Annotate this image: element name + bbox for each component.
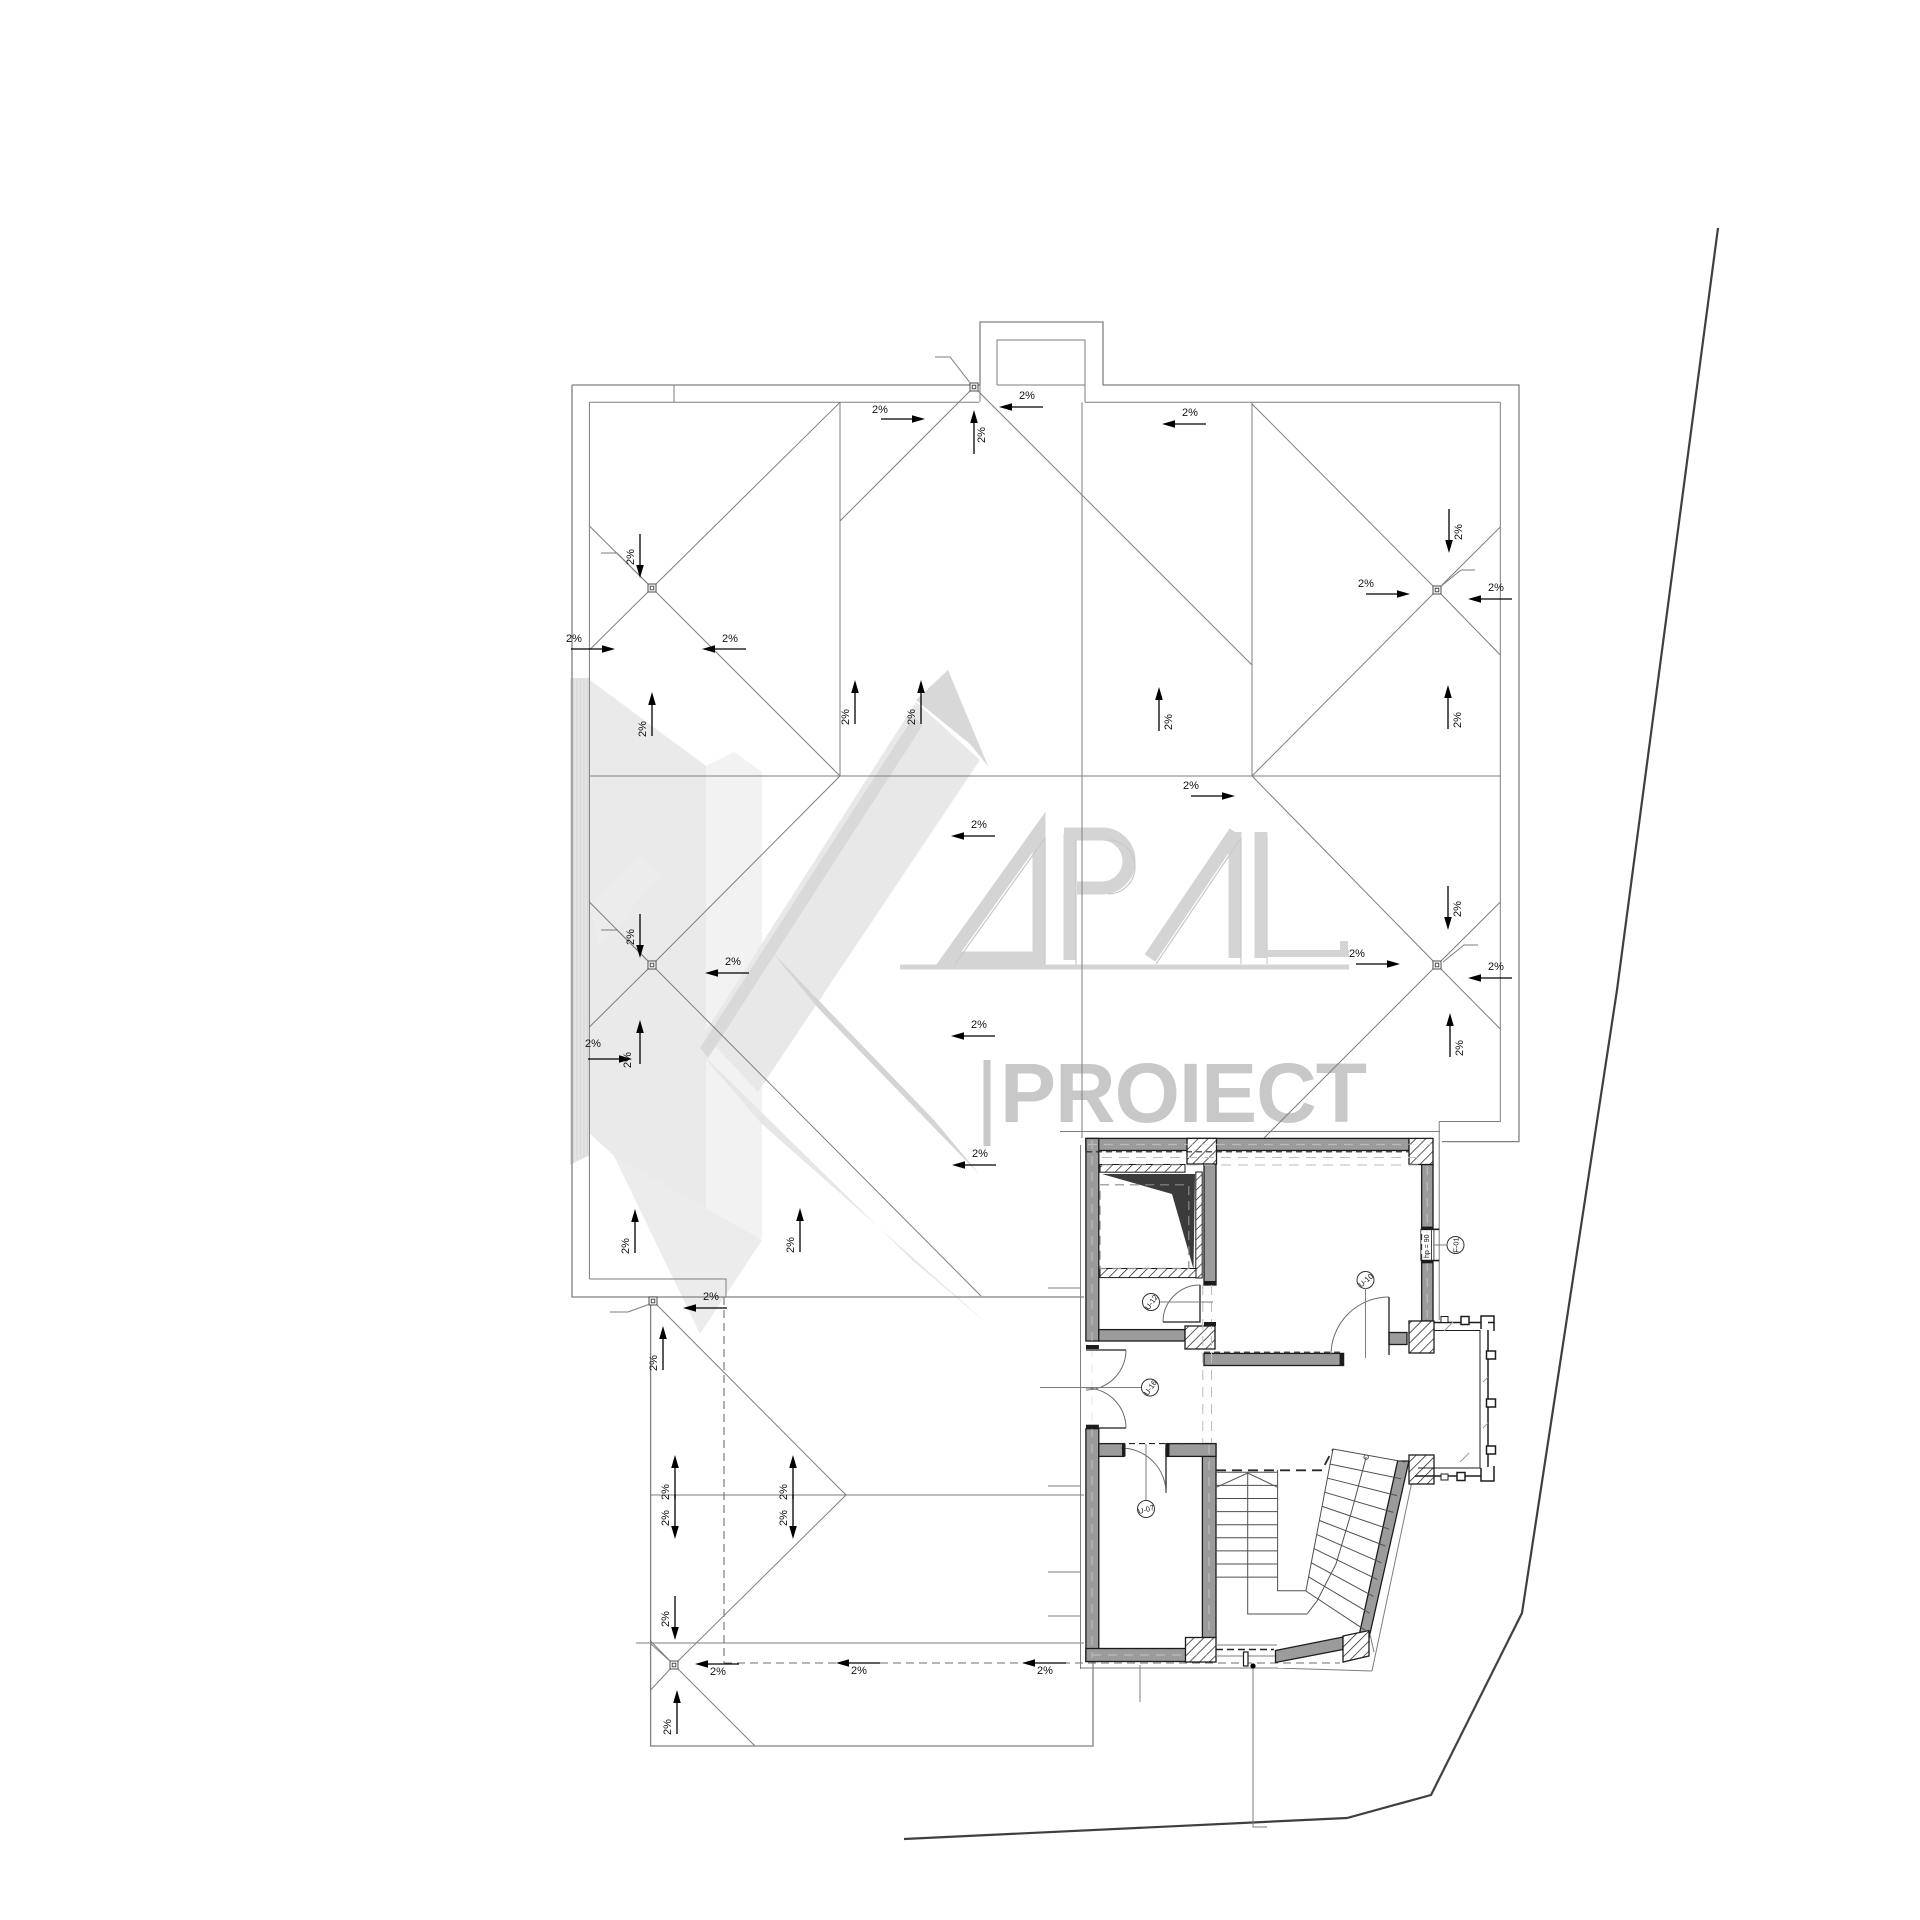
svg-text:2%: 2% [725, 956, 741, 968]
svg-text:2%: 2% [660, 1611, 672, 1627]
svg-text:2%: 2% [778, 1510, 790, 1526]
svg-text:hp = 90: hp = 90 [1424, 1234, 1431, 1258]
svg-text:2%: 2% [971, 819, 987, 831]
svg-text:2%: 2% [722, 633, 738, 645]
svg-text:2%: 2% [976, 427, 988, 443]
svg-text:2%: 2% [1452, 712, 1464, 728]
svg-text:2%: 2% [1349, 948, 1365, 960]
svg-text:PROIECT: PROIECT [1000, 1046, 1367, 1140]
svg-text:2%: 2% [660, 1484, 672, 1500]
svg-text:2%: 2% [1358, 578, 1374, 590]
svg-text:2%: 2% [1488, 582, 1504, 594]
svg-text:2%: 2% [1452, 901, 1464, 917]
svg-text:2%: 2% [971, 1019, 987, 1031]
svg-text:2%: 2% [1183, 780, 1199, 792]
svg-text:2%: 2% [622, 1052, 634, 1068]
svg-text:2%: 2% [662, 1719, 674, 1735]
svg-text:2%: 2% [1182, 407, 1198, 419]
svg-text:2%: 2% [972, 1148, 988, 1160]
svg-text:2%: 2% [703, 1291, 719, 1303]
svg-text:F-01: F-01 [1452, 1237, 1461, 1252]
svg-text:2%: 2% [906, 709, 918, 725]
svg-text:2%: 2% [625, 929, 637, 945]
svg-text:2%: 2% [648, 1355, 660, 1371]
svg-text:2%: 2% [620, 1238, 632, 1254]
svg-text:2%: 2% [778, 1484, 790, 1500]
svg-text:2%: 2% [710, 1666, 726, 1678]
svg-text:2%: 2% [1453, 524, 1465, 540]
svg-text:2%: 2% [566, 633, 582, 645]
svg-text:2%: 2% [1163, 714, 1175, 730]
svg-text:2%: 2% [785, 1237, 797, 1253]
svg-text:2%: 2% [1488, 961, 1504, 973]
svg-text:2%: 2% [851, 1665, 867, 1677]
svg-text:2%: 2% [1037, 1665, 1053, 1677]
svg-text:2%: 2% [637, 721, 649, 737]
svg-text:2%: 2% [840, 709, 852, 725]
svg-text:2%: 2% [1019, 390, 1035, 402]
svg-text:2%: 2% [585, 1038, 601, 1050]
svg-text:2%: 2% [872, 404, 888, 416]
svg-text:2%: 2% [660, 1510, 672, 1526]
svg-text:2%: 2% [625, 549, 637, 565]
svg-text:2%: 2% [1454, 1040, 1466, 1056]
